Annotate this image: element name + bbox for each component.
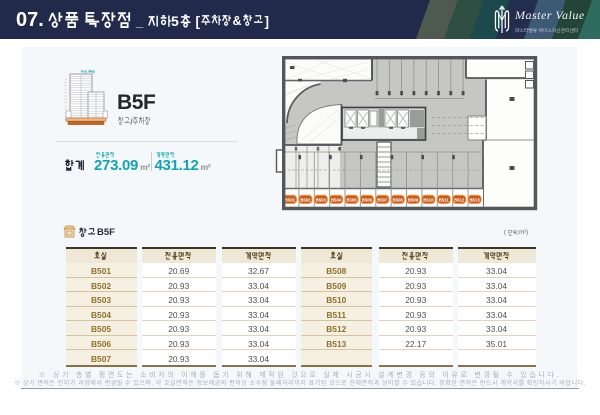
svg-text:B509: B509 xyxy=(408,198,419,203)
svg-text:B504: B504 xyxy=(331,198,342,203)
svg-text:B503: B503 xyxy=(316,198,327,203)
svg-text:B506: B506 xyxy=(362,198,373,203)
svg-text:B512: B512 xyxy=(454,198,465,203)
svg-text:B510: B510 xyxy=(423,198,434,203)
svg-text:B508: B508 xyxy=(393,198,404,203)
svg-text:B511: B511 xyxy=(439,198,450,203)
svg-text:B507: B507 xyxy=(377,198,388,203)
svg-text:B502: B502 xyxy=(300,198,311,203)
svg-text:B501: B501 xyxy=(285,198,296,203)
svg-text:B513: B513 xyxy=(469,198,480,203)
svg-text:B505: B505 xyxy=(346,198,357,203)
